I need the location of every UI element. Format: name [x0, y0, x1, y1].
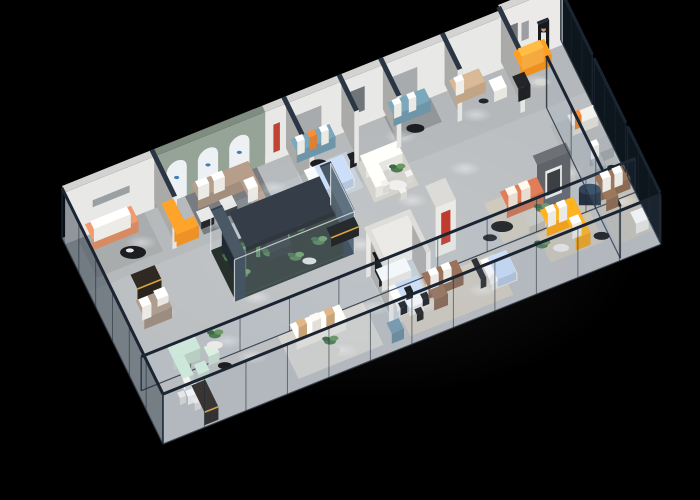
table-tray — [126, 248, 134, 252]
render-canvas — [0, 0, 700, 500]
wall-decor-red-niche — [273, 122, 280, 153]
black-oval-table-3 — [406, 124, 424, 133]
wall-decor-corner-art-2 — [522, 20, 529, 41]
mini-table-1 — [479, 98, 489, 103]
showroom-3d-render — [0, 0, 700, 500]
black-oval-table-1 — [120, 246, 146, 259]
white-round-table-1 — [207, 341, 223, 349]
